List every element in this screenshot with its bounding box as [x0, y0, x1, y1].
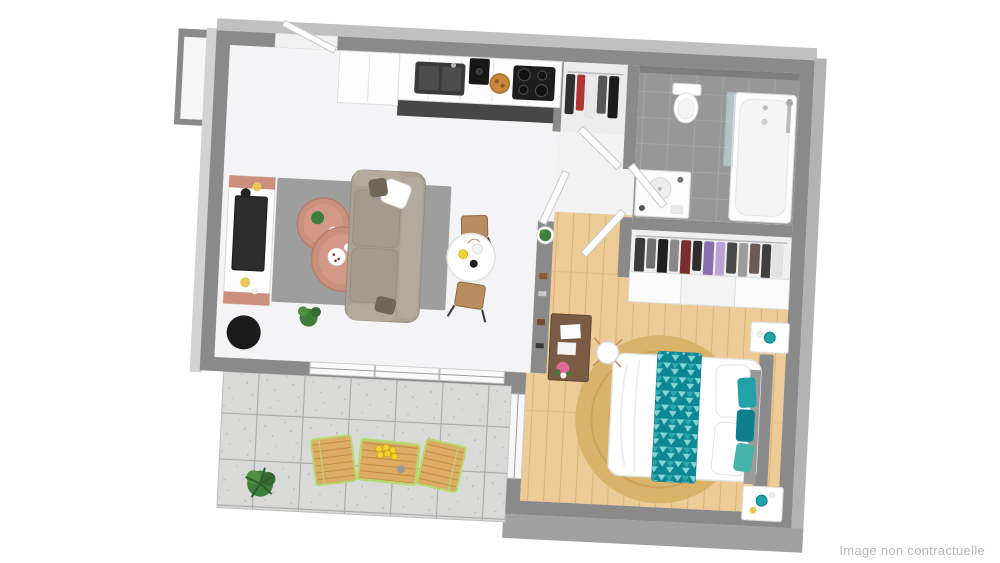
- bread-basket: [490, 74, 510, 94]
- terrace-bistro-table: [358, 439, 420, 485]
- dressing: [628, 236, 791, 310]
- teal-cushion: [736, 409, 756, 442]
- coffee-machine: [469, 58, 490, 85]
- watermark-disclaimer: Image non contractuelle: [839, 543, 985, 558]
- tv-console: [223, 175, 275, 305]
- teal-lamp: [756, 495, 768, 507]
- hall-plant: [536, 226, 554, 244]
- tv: [232, 196, 268, 272]
- kitchen-sink: [414, 61, 466, 96]
- teal-lamp: [764, 332, 776, 344]
- nightstand-bottom: [742, 486, 784, 522]
- floor-plan: [0, 0, 1000, 563]
- berry-plate: [328, 248, 346, 266]
- terrace: [217, 372, 512, 522]
- teal-cushion: [737, 377, 757, 408]
- double-bed: [607, 347, 774, 489]
- cooktop: [512, 65, 556, 101]
- sofa: [345, 169, 427, 323]
- terrace-chair-right: [417, 439, 466, 493]
- coat-niche: [564, 72, 623, 119]
- teal-triangle-throw: [651, 351, 702, 483]
- bathtub: [729, 92, 797, 223]
- terrace-chair-left: [311, 435, 356, 486]
- nightstand-top: [750, 322, 790, 354]
- dark-pillow: [368, 177, 389, 198]
- desk-chair: [593, 338, 622, 367]
- desk: [548, 314, 591, 382]
